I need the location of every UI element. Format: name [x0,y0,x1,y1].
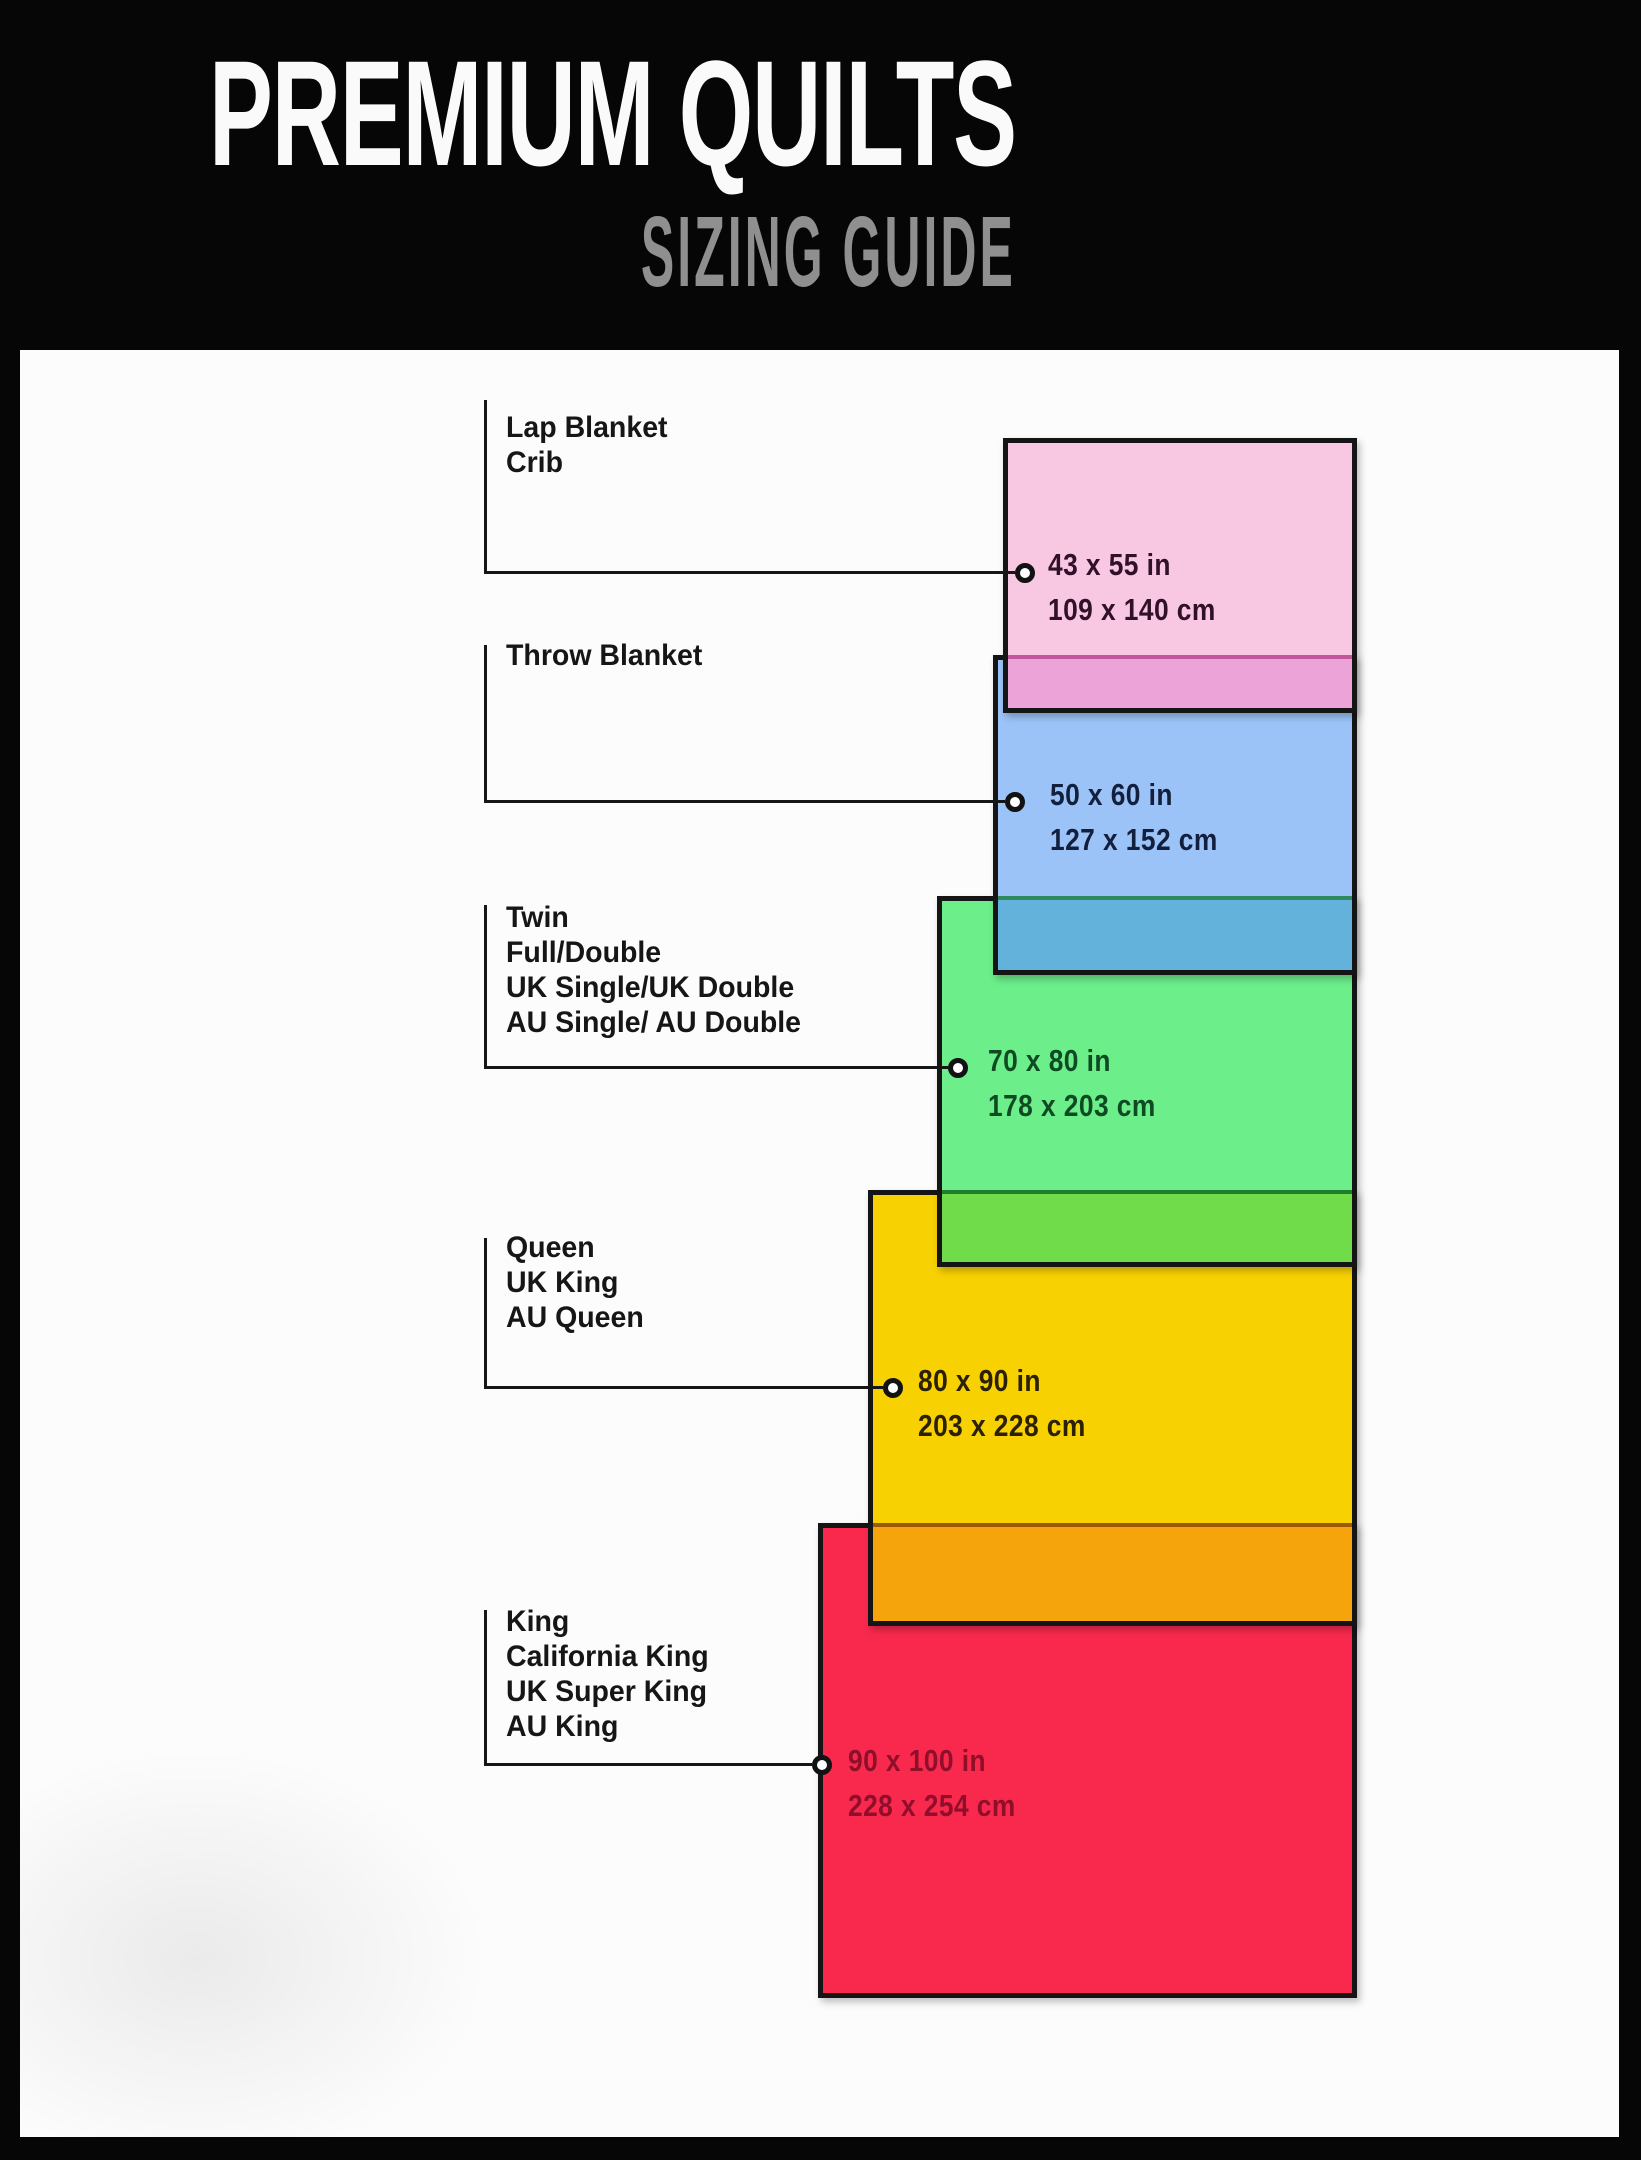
lap-crib-label: Lap Blanket Crib [506,410,668,480]
size-label-line: UK Super King [506,1674,709,1709]
throw-connector-vertical [484,645,487,803]
size-label-line: Crib [506,445,668,480]
size-label-line: Twin [506,900,801,935]
throw-twin-overlap-band [998,896,1352,970]
twin-dimensions: 70 x 80 in 178 x 203 cm [988,1038,1156,1128]
dimensions-cm: 228 x 254 cm [848,1783,1016,1828]
king-label: King California King UK Super King AU Ki… [506,1604,709,1744]
lap-crib-connector-vertical [484,400,487,574]
size-label-line: Throw Blanket [506,638,702,673]
size-label-line: AU Single/ AU Double [506,1005,801,1040]
king-connector-horizontal [484,1763,812,1766]
size-label-line: UK King [506,1265,644,1300]
twin-label: Twin Full/Double UK Single/UK Double AU … [506,900,801,1040]
size-label-line: Lap Blanket [506,410,668,445]
dimensions-cm: 178 x 203 cm [988,1083,1156,1128]
twin-connector-vertical [484,905,487,1069]
dimensions-in: 50 x 60 in [1050,772,1218,817]
size-label-line: Full/Double [506,935,801,970]
throw-connector-dot [1005,792,1025,812]
dimensions-in: 90 x 100 in [848,1738,1016,1783]
size-label-line: California King [506,1639,709,1674]
dimensions-in: 80 x 90 in [918,1358,1086,1403]
lap-crib-dimensions: 43 x 55 in 109 x 140 cm [1048,542,1216,632]
queen-connector-horizontal [484,1386,883,1389]
queen-dimensions: 80 x 90 in 203 x 228 cm [918,1358,1086,1448]
dimensions-in: 43 x 55 in [1048,542,1216,587]
twin-connector-horizontal [484,1066,948,1069]
twin-connector-dot [948,1058,968,1078]
throw-label: Throw Blanket [506,638,702,673]
queen-king-overlap-band [873,1523,1352,1621]
king-connector-vertical [484,1610,487,1766]
dimensions-cm: 203 x 228 cm [918,1403,1086,1448]
size-label-line: AU Queen [506,1300,644,1335]
size-label-line: AU King [506,1709,709,1744]
diagram-canvas: Lap Blanket Crib 43 x 55 in 109 x 140 cm… [0,0,1641,2160]
lap-crib-connector-horizontal [484,571,1015,574]
lap-crib-connector-dot [1015,563,1035,583]
dimensions-cm: 109 x 140 cm [1048,587,1216,632]
lap-throw-overlap-band [1008,655,1352,708]
queen-label: Queen UK King AU Queen [506,1230,644,1335]
size-label-line: UK Single/UK Double [506,970,801,1005]
queen-connector-vertical [484,1238,487,1389]
quilt-sizing-poster: PREMIUM QUILTS SIZING GUIDE Lap Blanket … [0,0,1641,2160]
dimensions-in: 70 x 80 in [988,1038,1156,1083]
throw-dimensions: 50 x 60 in 127 x 152 cm [1050,772,1218,862]
size-label-line: King [506,1604,709,1639]
queen-connector-dot [883,1378,903,1398]
king-dimensions: 90 x 100 in 228 x 254 cm [848,1738,1016,1828]
twin-queen-overlap-band [942,1190,1352,1262]
throw-connector-horizontal [484,800,1005,803]
king-connector-dot [812,1755,832,1775]
size-label-line: Queen [506,1230,644,1265]
dimensions-cm: 127 x 152 cm [1050,817,1218,862]
